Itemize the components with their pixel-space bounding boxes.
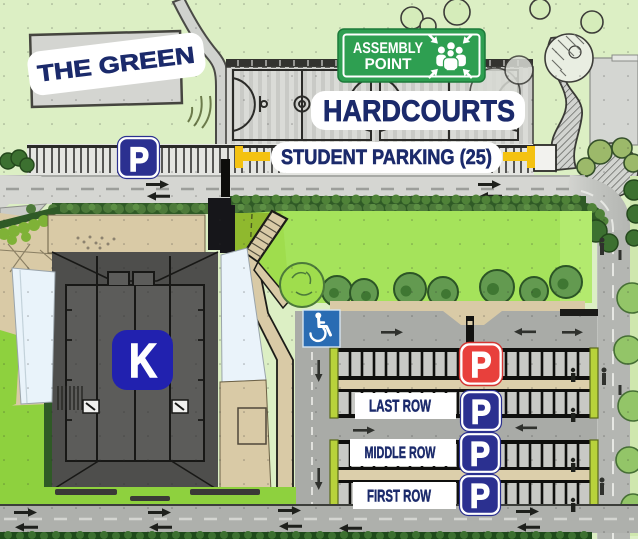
svg-text:P: P [471, 344, 492, 385]
svg-text:P: P [470, 478, 490, 516]
svg-text:P: P [470, 436, 490, 474]
svg-text:FIRST ROW: FIRST ROW [367, 487, 432, 506]
svg-text:STUDENT PARKING (25): STUDENT PARKING (25) [281, 146, 492, 169]
svg-text:HARDCOURTS: HARDCOURTS [323, 95, 515, 128]
svg-text:K: K [129, 335, 157, 388]
svg-text:LAST ROW: LAST ROW [369, 397, 432, 416]
svg-text:ASSEMBLY: ASSEMBLY [353, 40, 424, 57]
svg-text:POINT: POINT [365, 56, 413, 73]
svg-text:P: P [471, 394, 491, 432]
svg-text:P: P [129, 141, 149, 179]
svg-text:MIDDLE ROW: MIDDLE ROW [365, 444, 436, 462]
